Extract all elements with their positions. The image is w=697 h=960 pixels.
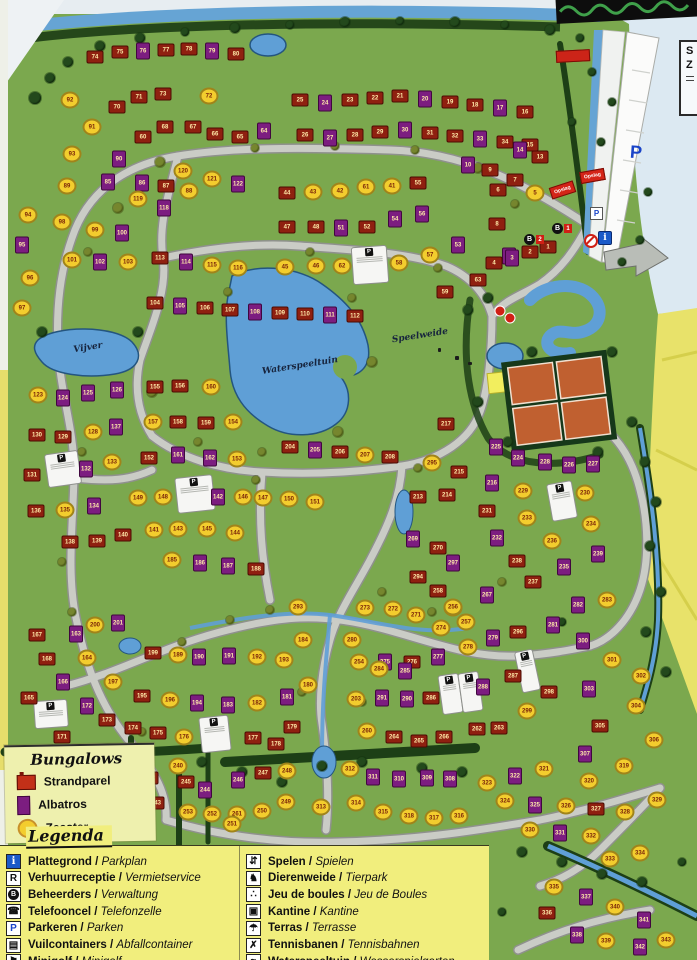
- building-block: [556, 49, 591, 63]
- tree-icon: [637, 877, 647, 887]
- plot-marker-103: 103: [119, 254, 138, 271]
- tree-icon: [68, 608, 76, 616]
- plot-marker-135: 135: [56, 502, 75, 519]
- corner-sign-tick: [686, 80, 694, 81]
- tree-icon: [226, 616, 234, 624]
- warning-sign-icon: [495, 306, 505, 316]
- petting-zoo-icon: ♞: [246, 871, 261, 886]
- corner-sign-line: S: [686, 45, 697, 59]
- tree-icon: [597, 138, 605, 146]
- plot-marker-34: 34: [497, 136, 514, 149]
- tree-icon: [396, 17, 404, 25]
- tree-icon: [641, 627, 651, 637]
- tree-icon: [367, 357, 377, 367]
- plot-marker-19: 19: [442, 96, 459, 109]
- plot-marker-122: 122: [231, 176, 245, 193]
- tree-icon: [517, 847, 527, 857]
- plot-marker-126: 126: [110, 382, 124, 399]
- plot-marker-229: 229: [514, 483, 533, 500]
- plot-marker-33: 33: [473, 131, 487, 148]
- tree-icon: [135, 33, 145, 43]
- plot-marker-77: 77: [158, 44, 175, 57]
- plot-marker-307: 307: [578, 746, 592, 763]
- plot-marker-301: 301: [603, 652, 622, 669]
- tree-icon: [266, 606, 274, 614]
- tree-icon: [95, 41, 105, 51]
- plot-marker-189: 189: [169, 647, 188, 664]
- bungalows-legend-title: Bungalows: [30, 749, 154, 769]
- plot-marker-188: 188: [248, 563, 265, 576]
- tree-icon: [29, 92, 41, 104]
- corner-sign-line: Z: [686, 59, 697, 73]
- plot-marker-302: 302: [632, 668, 651, 685]
- plot-marker-17: 17: [493, 100, 507, 117]
- plot-marker-46: 46: [307, 258, 326, 275]
- plot-marker-48: 48: [308, 221, 325, 234]
- tree-icon: [378, 588, 386, 596]
- parking-slot-line: [39, 714, 63, 717]
- plot-marker-32: 32: [447, 130, 464, 143]
- park-map-page: S Z P P i B 1 B 2 Opslag Opslag VijverWa…: [0, 0, 697, 960]
- plot-marker-139: 139: [89, 535, 106, 548]
- plot-marker-63: 63: [470, 274, 487, 287]
- plot-marker-154: 154: [224, 414, 243, 431]
- plot-marker-153: 153: [228, 451, 247, 468]
- plot-marker-165: 165: [21, 692, 38, 705]
- tree-icon: [498, 908, 506, 916]
- tree-icon: [511, 200, 519, 208]
- tree-icon: [286, 21, 294, 29]
- plot-marker-215: 215: [451, 466, 468, 479]
- parking-icon: P: [6, 921, 21, 936]
- plot-marker-94: 94: [19, 207, 38, 224]
- plot-marker-226: 226: [562, 457, 576, 474]
- albatros-block-icon: [17, 795, 30, 814]
- plot-marker-110: 110: [297, 308, 314, 321]
- plot-marker-246: 246: [231, 772, 245, 789]
- bungalow-type-label: Strandparel: [44, 773, 111, 788]
- tree-icon: [503, 437, 513, 447]
- tree-icon: [557, 857, 567, 867]
- plot-marker-31: 31: [422, 127, 439, 140]
- plot-marker-158: 158: [170, 416, 187, 429]
- plot-marker-67: 67: [185, 121, 202, 134]
- plot-marker-239: 239: [591, 546, 605, 563]
- tree-icon: [340, 17, 350, 27]
- plot-marker-228: 228: [538, 454, 552, 471]
- parking-p-sign: P: [57, 454, 66, 463]
- plot-marker-316: 316: [450, 808, 469, 825]
- parking-p-sign: P: [189, 478, 198, 487]
- plot-marker-298: 298: [541, 686, 558, 699]
- terrace-icon: ☂: [246, 921, 261, 936]
- plot-marker-217: 217: [438, 418, 455, 431]
- plot-marker-175: 175: [150, 727, 167, 740]
- plot-marker-159: 159: [198, 417, 215, 430]
- tree-icon: [678, 858, 686, 866]
- plot-marker-227: 227: [586, 456, 600, 473]
- plot-marker-172: 172: [80, 698, 94, 715]
- plot-marker-78: 78: [181, 43, 198, 56]
- legend-row: ▣Kantine / Kantine: [246, 904, 359, 919]
- plot-marker-293: 293: [289, 599, 308, 616]
- plot-marker-115: 115: [203, 257, 222, 274]
- plot-marker-308: 308: [443, 771, 457, 788]
- plot-marker-55: 55: [410, 177, 427, 190]
- plot-marker-193: 193: [275, 652, 294, 669]
- legend-row: ⚑Minigolf / Minigolf: [6, 954, 121, 960]
- plot-marker-192: 192: [248, 649, 267, 666]
- park-parking-strip: P: [33, 699, 69, 729]
- plot-marker-265: 265: [411, 735, 428, 748]
- plot-marker-96: 96: [21, 270, 40, 287]
- plot-marker-166: 166: [56, 674, 70, 691]
- tree-icon: [597, 869, 607, 879]
- plot-marker-80: 80: [228, 48, 245, 61]
- tree-icon: [636, 236, 644, 244]
- plot-marker-206: 206: [332, 446, 349, 459]
- plot-marker-281: 281: [546, 617, 560, 634]
- legend-row: iPlattegrond / Parkplan: [6, 854, 147, 869]
- plot-marker-330: 330: [521, 822, 540, 839]
- tree-icon: [645, 541, 655, 551]
- plot-marker-280: 280: [343, 632, 362, 649]
- tree-icon: [63, 57, 73, 67]
- plot-marker-143: 143: [169, 521, 188, 538]
- plot-marker-164: 164: [78, 650, 97, 667]
- plot-marker-203: 203: [347, 691, 366, 708]
- plot-marker-274: 274: [432, 620, 451, 637]
- tree-icon: [113, 203, 123, 213]
- parking-p-sign: P: [444, 676, 453, 685]
- plot-marker-324: 324: [496, 793, 515, 810]
- tree-icon: [501, 21, 509, 29]
- plot-marker-86: 86: [135, 175, 149, 192]
- tree-icon: [45, 73, 55, 83]
- plot-marker-250: 250: [253, 803, 272, 820]
- plot-marker-266: 266: [436, 731, 453, 744]
- legend-row-label: Waterspeeltuin / Wasserspielgarten: [268, 956, 455, 960]
- manager-icon: B: [6, 887, 21, 902]
- tree-icon: [348, 294, 356, 302]
- plot-marker-245: 245: [178, 776, 195, 789]
- warning-sign-icon: [505, 313, 515, 323]
- plot-marker-310: 310: [392, 771, 406, 788]
- corner-sign-box: S Z: [679, 40, 697, 116]
- minigolf-icon: ⚑: [6, 954, 21, 960]
- plot-marker-130: 130: [29, 429, 46, 442]
- plot-marker-283: 283: [598, 592, 617, 609]
- playground-icon: ⇵: [246, 854, 261, 869]
- main-parking-label: P: [629, 142, 642, 164]
- plot-marker-137: 137: [109, 419, 123, 436]
- plot-marker-257: 257: [457, 614, 476, 631]
- plot-marker-297: 297: [446, 555, 460, 572]
- phone-booth-icon: ☎: [6, 904, 21, 919]
- plot-marker-338: 338: [570, 927, 584, 944]
- legend-divider: [239, 846, 240, 960]
- plot-marker-267: 267: [480, 587, 494, 604]
- park-parking-strip: P: [174, 474, 216, 514]
- plot-marker-61: 61: [357, 179, 376, 196]
- plot-marker-146: 146: [234, 489, 253, 506]
- plot-marker-23: 23: [342, 94, 359, 107]
- plot-marker-204: 204: [282, 441, 299, 454]
- plot-marker-66: 66: [207, 128, 224, 141]
- rental-reception-icon: R: [6, 871, 21, 886]
- plot-marker-341: 341: [637, 912, 651, 929]
- plot-marker-160: 160: [202, 379, 221, 396]
- plot-marker-162: 162: [203, 450, 217, 467]
- strandparel-house-icon: [17, 774, 36, 789]
- plot-marker-112: 112: [347, 310, 364, 323]
- tree-icon: [588, 68, 596, 76]
- plot-marker-277: 277: [431, 649, 445, 666]
- plot-marker-306: 306: [645, 732, 664, 749]
- legend-panel: iPlattegrond / ParkplanRVerhuurreceptie …: [0, 845, 489, 960]
- plot-marker-182: 182: [248, 695, 267, 712]
- plot-marker-264: 264: [386, 731, 403, 744]
- tree-icon: [483, 293, 493, 303]
- plot-marker-22: 22: [367, 92, 384, 105]
- plot-marker-18: 18: [467, 99, 484, 112]
- tree-icon: [428, 608, 436, 616]
- plot-marker-124: 124: [56, 390, 70, 407]
- tree-icon: [640, 457, 650, 467]
- plot-marker-128: 128: [84, 424, 103, 441]
- plot-marker-171: 171: [54, 731, 71, 744]
- plot-marker-296: 296: [510, 626, 527, 639]
- plot-marker-263: 263: [491, 722, 508, 735]
- plot-marker-113: 113: [152, 252, 169, 265]
- plot-marker-20: 20: [418, 91, 432, 108]
- tree-icon: [644, 188, 652, 196]
- legend-title: Legenda: [26, 825, 112, 848]
- plot-marker-240: 240: [169, 758, 188, 775]
- plot-marker-273: 273: [356, 600, 375, 617]
- plot-marker-262: 262: [469, 723, 486, 736]
- tree-icon: [608, 98, 616, 106]
- plot-marker-111: 111: [323, 307, 337, 324]
- plot-marker-10: 10: [461, 157, 475, 174]
- plot-marker-133: 133: [103, 454, 122, 471]
- plot-marker-114: 114: [179, 254, 193, 271]
- plot-marker-335: 335: [545, 879, 564, 896]
- plot-marker-269: 269: [406, 531, 420, 548]
- plot-marker-74: 74: [87, 51, 104, 64]
- plot-marker-254: 254: [350, 654, 369, 671]
- bungalow-type-row: Albatros: [17, 793, 155, 815]
- plot-marker-134: 134: [87, 498, 101, 515]
- plot-marker-30: 30: [398, 122, 412, 139]
- tree-icon: [656, 587, 666, 597]
- tree-icon: [37, 327, 47, 337]
- plot-marker-190: 190: [192, 649, 206, 666]
- plot-marker-299: 299: [518, 703, 537, 720]
- plot-marker-120: 120: [174, 163, 193, 180]
- bungalow-type-row: Strandparel: [17, 770, 155, 792]
- plot-marker-194: 194: [190, 695, 204, 712]
- map-info-icon: i: [6, 854, 21, 869]
- plot-marker-150: 150: [280, 491, 299, 508]
- plot-marker-233: 233: [518, 510, 537, 527]
- tree-icon: [224, 288, 232, 296]
- tree-icon: [576, 34, 584, 42]
- parking-sign-icon: P: [590, 207, 603, 220]
- plot-marker-141: 141: [145, 522, 164, 539]
- plot-marker-29: 29: [372, 126, 389, 139]
- tree-icon: [414, 464, 422, 472]
- plot-marker-235: 235: [557, 559, 571, 576]
- legend-row-label: Spelen / Spielen: [268, 856, 354, 868]
- plot-marker-317: 317: [425, 810, 444, 827]
- plot-marker-119: 119: [129, 191, 148, 208]
- plot-marker-101: 101: [63, 252, 82, 269]
- legend-row-label: Terras / Terrasse: [268, 922, 356, 934]
- plot-marker-76: 76: [136, 43, 150, 60]
- tree-icon: [178, 638, 186, 646]
- waste-container-icon: ▤: [6, 938, 21, 953]
- plot-marker-47: 47: [279, 221, 296, 234]
- plot-marker-285: 285: [398, 663, 412, 680]
- plot-marker-72: 72: [200, 88, 219, 105]
- plot-marker-26: 26: [297, 129, 314, 142]
- plot-marker-109: 109: [272, 307, 289, 320]
- plot-marker-321: 321: [535, 761, 554, 778]
- plot-marker-186: 186: [193, 555, 207, 572]
- plot-marker-106: 106: [197, 302, 214, 315]
- tree-icon: [252, 476, 260, 484]
- petanque-icon: ∴: [246, 887, 261, 902]
- plot-marker-236: 236: [543, 533, 562, 550]
- plot-marker-238: 238: [509, 555, 526, 568]
- badge-number: 2: [536, 235, 544, 244]
- plot-marker-284: 284: [370, 661, 389, 678]
- tree-icon: [457, 767, 467, 777]
- animal-figure-icon: [468, 362, 472, 365]
- plot-marker-89: 89: [58, 178, 77, 195]
- tree-icon: [545, 25, 555, 35]
- park-parking-strip: P: [351, 245, 390, 285]
- plot-marker-185: 185: [163, 552, 182, 569]
- plot-marker-25: 25: [292, 94, 309, 107]
- plot-marker-151: 151: [306, 494, 325, 511]
- tree-icon: [194, 438, 202, 446]
- information-icon: i: [598, 231, 612, 245]
- plot-marker-332: 332: [582, 828, 601, 845]
- tree-icon: [306, 248, 314, 256]
- plot-marker-320: 320: [580, 773, 599, 790]
- plot-marker-71: 71: [131, 91, 148, 104]
- plot-marker-60: 60: [135, 131, 152, 144]
- tree-icon: [607, 347, 617, 357]
- legend-row: ✗Tennisbanen / Tennisbahnen: [246, 938, 420, 953]
- tree-icon: [498, 578, 506, 586]
- plot-marker-57: 57: [421, 247, 440, 264]
- plot-marker-167: 167: [29, 629, 46, 642]
- plot-marker-4: 4: [486, 257, 503, 270]
- plot-marker-195: 195: [134, 690, 151, 703]
- plot-marker-312: 312: [341, 761, 360, 778]
- plot-marker-43: 43: [304, 184, 323, 201]
- plot-marker-270: 270: [430, 542, 447, 555]
- plot-marker-28: 28: [347, 129, 364, 142]
- plot-marker-92: 92: [61, 92, 80, 109]
- plot-marker-155: 155: [147, 381, 164, 394]
- plot-marker-108: 108: [248, 304, 262, 321]
- legend-row-label: Kantine / Kantine: [268, 906, 359, 918]
- plot-marker-64: 64: [257, 123, 271, 140]
- plot-marker-311: 311: [366, 769, 380, 786]
- tree-icon: [450, 17, 460, 27]
- plot-marker-156: 156: [172, 380, 189, 393]
- plot-marker-91: 91: [83, 119, 102, 136]
- plot-marker-248: 248: [278, 763, 297, 780]
- plot-marker-313: 313: [312, 799, 331, 816]
- parking-p-sign: P: [46, 702, 55, 711]
- plot-marker-73: 73: [155, 88, 172, 101]
- plot-marker-272: 272: [384, 601, 403, 618]
- legend-row-label: Verhuurreceptie / Vermietservice: [28, 872, 201, 884]
- legend-row-label: Telefooncel / Telefonzelle: [28, 906, 162, 918]
- plot-marker-14: 14: [513, 142, 527, 159]
- plot-marker-142: 142: [211, 489, 225, 506]
- plot-marker-231: 231: [479, 505, 496, 518]
- legend-row-label: Dierenweide / Tierpark: [268, 872, 387, 884]
- plot-marker-132: 132: [79, 461, 93, 478]
- plot-marker-196: 196: [161, 692, 180, 709]
- tree-icon: [568, 118, 576, 126]
- plot-marker-205: 205: [308, 442, 322, 459]
- plot-marker-44: 44: [279, 187, 296, 200]
- plot-marker-279: 279: [486, 630, 500, 647]
- plot-marker-93: 93: [63, 146, 82, 163]
- legend-row: ⇵Spelen / Spielen: [246, 854, 354, 869]
- plot-marker-336: 336: [539, 907, 556, 920]
- plot-marker-232: 232: [490, 530, 504, 547]
- plot-marker-161: 161: [171, 447, 185, 464]
- plot-marker-145: 145: [198, 521, 217, 538]
- plot-marker-100: 100: [115, 225, 129, 242]
- tree-icon: [133, 327, 143, 337]
- parking-p-sign: P: [365, 248, 374, 257]
- plot-marker-331: 331: [553, 825, 567, 842]
- plot-marker-179: 179: [284, 721, 301, 734]
- legend-row-label: Jeu de boules / Jeu de Boules: [268, 889, 427, 901]
- plot-marker-286: 286: [423, 692, 440, 705]
- animal-figure-icon: [438, 348, 441, 352]
- plot-marker-327: 327: [588, 803, 605, 816]
- tree-icon: [651, 497, 661, 507]
- plot-marker-199: 199: [145, 647, 162, 660]
- plot-marker-149: 149: [129, 490, 148, 507]
- legend-row: ☎Telefooncel / Telefonzelle: [6, 904, 162, 919]
- plot-marker-282: 282: [571, 597, 585, 614]
- plot-marker-42: 42: [331, 183, 350, 200]
- plot-marker-328: 328: [616, 804, 635, 821]
- tree-icon: [411, 146, 419, 154]
- plot-marker-65: 65: [232, 131, 249, 144]
- plot-marker-337: 337: [579, 889, 593, 906]
- tree-icon: [78, 448, 86, 456]
- plot-marker-326: 326: [557, 798, 576, 815]
- plot-marker-244: 244: [198, 782, 212, 799]
- plot-marker-129: 129: [55, 431, 72, 444]
- plot-marker-260: 260: [358, 723, 377, 740]
- badge-letter: B: [552, 223, 563, 234]
- legend-row-label: Vuilcontainers / Abfallcontainer: [28, 939, 193, 951]
- plot-marker-251: 251: [223, 816, 242, 833]
